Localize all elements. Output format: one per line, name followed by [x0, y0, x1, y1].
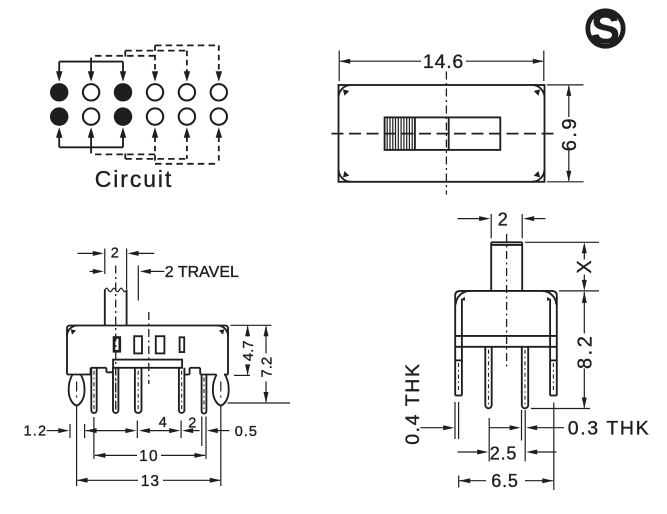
svg-text:4.7: 4.7	[240, 340, 257, 361]
svg-text:2.5: 2.5	[490, 443, 517, 463]
svg-text:2: 2	[498, 210, 508, 230]
svg-text:2 TRAVEL: 2 TRAVEL	[165, 264, 239, 281]
svg-text:0.5: 0.5	[235, 424, 258, 440]
svg-text:10: 10	[139, 448, 159, 465]
svg-text:7.2: 7.2	[258, 357, 275, 378]
svg-text:2: 2	[188, 415, 196, 431]
svg-text:14.6: 14.6	[423, 51, 464, 73]
svg-text:2: 2	[111, 246, 119, 262]
svg-text:X: X	[574, 260, 596, 273]
svg-text:4: 4	[159, 415, 167, 431]
svg-text:13: 13	[141, 473, 160, 490]
svg-text:1.2: 1.2	[24, 424, 48, 440]
svg-text:6.5: 6.5	[491, 471, 518, 491]
svg-text:8.2: 8.2	[575, 334, 597, 369]
svg-text:0.3 THK: 0.3 THK	[568, 418, 650, 440]
svg-text:Circuit: Circuit	[95, 166, 173, 192]
svg-text:S: S	[591, 5, 620, 53]
svg-text:6.9: 6.9	[559, 116, 581, 151]
svg-text:0.4 THK: 0.4 THK	[402, 362, 424, 444]
